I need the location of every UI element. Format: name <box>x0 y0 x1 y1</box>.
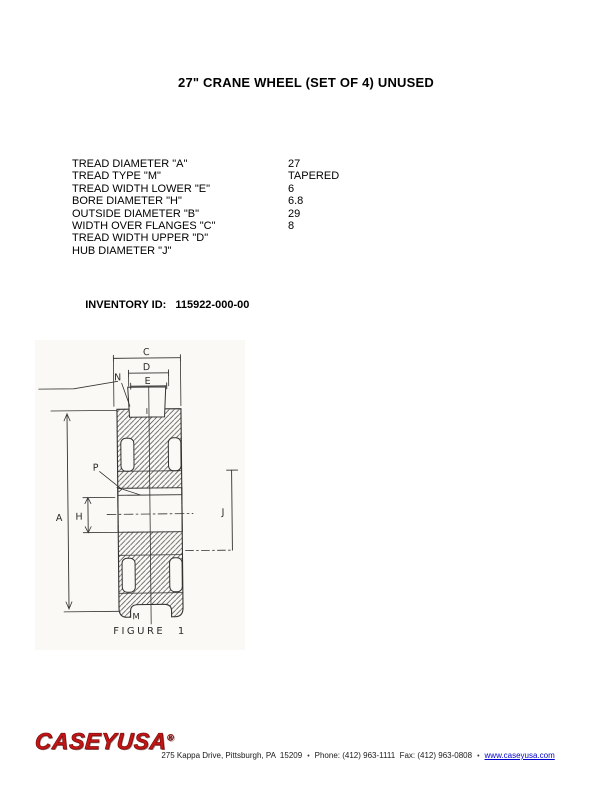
document-page: 27" CRANE WHEEL (SET OF 4) UNUSED TREAD … <box>0 0 612 792</box>
inventory-id: INVENTORY ID:115922-000-00 <box>73 287 249 323</box>
web-cutout <box>121 438 134 471</box>
spec-row: HUB DIAMETER "J" <box>72 245 472 257</box>
crane-wheel-drawing: C D E N I A H J P M FIGURE 1 <box>35 340 245 650</box>
figure-label-c: C <box>143 347 150 358</box>
spec-label: WIDTH OVER FLANGES "C" <box>72 220 288 232</box>
spec-row: TREAD DIAMETER "A" 27 <box>72 158 472 170</box>
spec-value: TAPERED <box>288 170 339 182</box>
spec-row: TREAD WIDTH UPPER "D" <box>72 232 472 244</box>
spec-label: TREAD WIDTH UPPER "D" <box>72 232 288 244</box>
figure-label-d: D <box>143 362 150 373</box>
spec-label: BORE DIAMETER "H" <box>72 195 288 207</box>
figure-label-m: M <box>132 612 139 622</box>
footer-bullet: • <box>307 753 309 760</box>
figure-caption: FIGURE 1 <box>113 626 187 637</box>
inventory-id-label: INVENTORY ID: <box>85 299 166 311</box>
registered-trademark-symbol: ® <box>167 732 175 742</box>
spec-label: TREAD DIAMETER "A" <box>72 158 288 170</box>
page-title: 27" CRANE WHEEL (SET OF 4) UNUSED <box>0 75 612 90</box>
spec-value: 6 <box>288 183 294 195</box>
figure-label-n: N <box>114 372 121 383</box>
footer-contact-line: 275 Kappa Drive, Pittsburgh, PA 15209•Ph… <box>148 742 608 769</box>
leader-n <box>39 381 118 389</box>
web-cutout <box>168 438 181 471</box>
spec-row: WIDTH OVER FLANGES "C" 8 <box>72 220 472 232</box>
crane-wheel-figure: C D E N I A H J P M FIGURE 1 <box>35 340 245 650</box>
figure-label-a: A <box>56 513 63 524</box>
figure-label-j: J <box>221 507 225 518</box>
spec-label: TREAD TYPE "M" <box>72 170 288 182</box>
spec-row: TREAD WIDTH LOWER "E" 6 <box>72 183 472 195</box>
spec-value: 6.8 <box>288 195 303 207</box>
spec-list: TREAD DIAMETER "A" 27 TREAD TYPE "M" TAP… <box>72 158 472 257</box>
figure-label-p: P <box>93 463 99 474</box>
spec-value: 8 <box>288 220 294 232</box>
inventory-id-value: 115922-000-00 <box>175 299 249 311</box>
web-cutout <box>122 558 135 592</box>
figure-label-i: I <box>146 407 148 416</box>
footer-bullet: • <box>477 753 479 760</box>
footer-phone-fax: Phone: (412) 963-1111 Fax: (412) 963-080… <box>315 751 472 760</box>
spec-label: HUB DIAMETER "J" <box>72 245 288 257</box>
spec-row: OUTSIDE DIAMETER "B" 29 <box>72 208 472 220</box>
spec-value: 27 <box>288 158 300 170</box>
web-cutout <box>170 558 183 592</box>
spec-label: TREAD WIDTH LOWER "E" <box>72 183 288 195</box>
figure-label-e: E <box>145 376 151 387</box>
footer: CASEYUSA® 275 Kappa Drive, Pittsburgh, P… <box>0 720 612 780</box>
spec-row: BORE DIAMETER "H" 6.8 <box>72 195 472 207</box>
figure-label-h: H <box>75 512 82 523</box>
footer-address: 275 Kappa Drive, Pittsburgh, PA 15209 <box>161 751 302 760</box>
spec-label: OUTSIDE DIAMETER "B" <box>72 208 288 220</box>
spec-value: 29 <box>288 208 300 220</box>
spec-row: TREAD TYPE "M" TAPERED <box>72 170 472 182</box>
website-link[interactable]: www.caseyusa.com <box>485 751 555 760</box>
